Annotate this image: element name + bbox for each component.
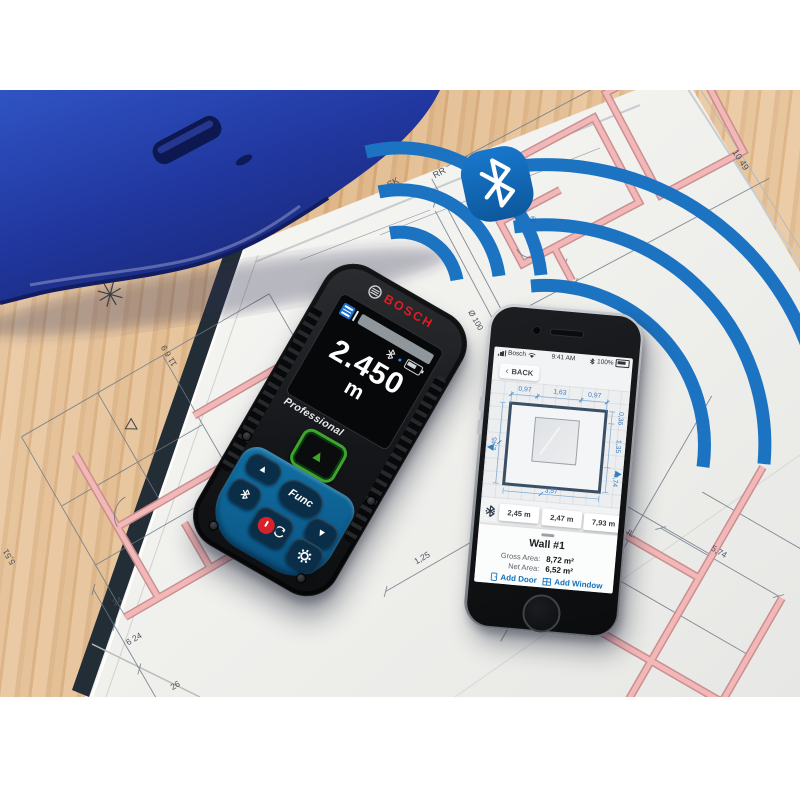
net-area-value: 6,52 m² — [545, 564, 573, 575]
bluetooth-active-dot — [398, 358, 402, 362]
dim-right-top: 0,36 — [616, 412, 624, 426]
window-icon — [542, 577, 552, 586]
power-clear-button[interactable] — [245, 503, 297, 552]
wall-diagram: 0,97 1,63 0,97 2,45 0,36 1,35 0,74 3,57 — [481, 379, 630, 509]
dim-top-left: 0,97 — [518, 386, 532, 394]
dim-right-mid: 1,35 — [614, 440, 622, 454]
plan-label-551: 5,51 — [0, 547, 17, 567]
measurement-chip[interactable]: 2,47 m — [541, 508, 582, 528]
battery-percent-label: 100% — [597, 358, 614, 366]
measurement-chip[interactable]: 2,45 m — [498, 503, 539, 523]
prev-page-arrow[interactable]: ◀ — [486, 442, 494, 452]
up-triangle-icon: ▲ — [257, 462, 271, 476]
window-shape — [532, 417, 580, 465]
photo-area: SK RR 24 6 24 26 5,51 11 6 9 1,25 — [0, 90, 800, 697]
func-label: Func — [286, 487, 315, 511]
phone-screen: Bosch 9:41 AM 100% ‹ BA — [474, 346, 633, 593]
gear-icon — [294, 545, 316, 567]
add-window-label: Add Window — [554, 578, 603, 591]
status-bluetooth-icon — [590, 357, 596, 364]
battery-icon — [615, 359, 630, 368]
smartphone: Bosch 9:41 AM 100% ‹ BA — [462, 302, 645, 639]
back-chevron-icon: ‹ — [505, 366, 509, 375]
measure-triangle-icon: ▲ — [308, 446, 328, 466]
triangle-marker — [122, 419, 137, 434]
next-page-arrow[interactable]: ▶ — [615, 469, 623, 479]
chips-bluetooth-icon — [485, 504, 496, 518]
registered-mark: ® — [530, 215, 536, 224]
door-icon — [490, 572, 498, 582]
add-door-label: Add Door — [500, 573, 537, 585]
dim-bottom: 3,57 — [544, 487, 558, 495]
drag-handle[interactable] — [541, 533, 554, 537]
product-photo: SK RR 24 6 24 26 5,51 11 6 9 1,25 — [0, 0, 800, 801]
dim-top-right: 0,97 — [588, 392, 602, 400]
dim-top-center: 1,63 — [553, 389, 567, 397]
wall-panel: Wall #1 Gross Area: 8,72 m² Net Area: 6,… — [474, 524, 618, 594]
add-door-button[interactable]: Add Door — [490, 572, 537, 585]
down-triangle-icon: ▼ — [314, 526, 328, 540]
bluetooth-key-icon — [238, 486, 252, 501]
back-label: BACK — [511, 367, 533, 378]
back-button[interactable]: ‹ BACK — [499, 363, 540, 381]
